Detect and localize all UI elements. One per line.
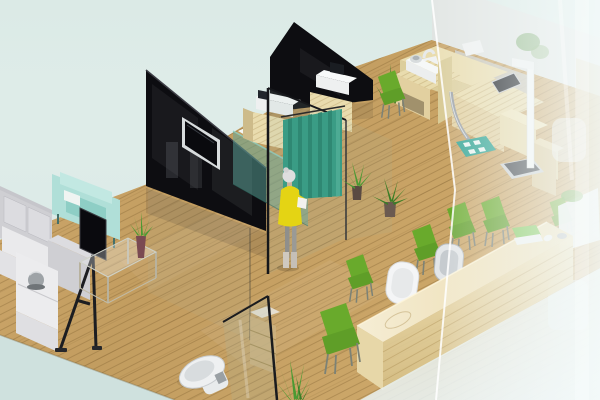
frosted-glass-wall [432,0,600,400]
isometric-interior-render: 3D isometric cutaway rendering of a clin… [0,0,600,400]
paper-in-hand [297,197,307,209]
scene-canvas: 3D isometric cutaway rendering of a clin… [0,0,600,400]
